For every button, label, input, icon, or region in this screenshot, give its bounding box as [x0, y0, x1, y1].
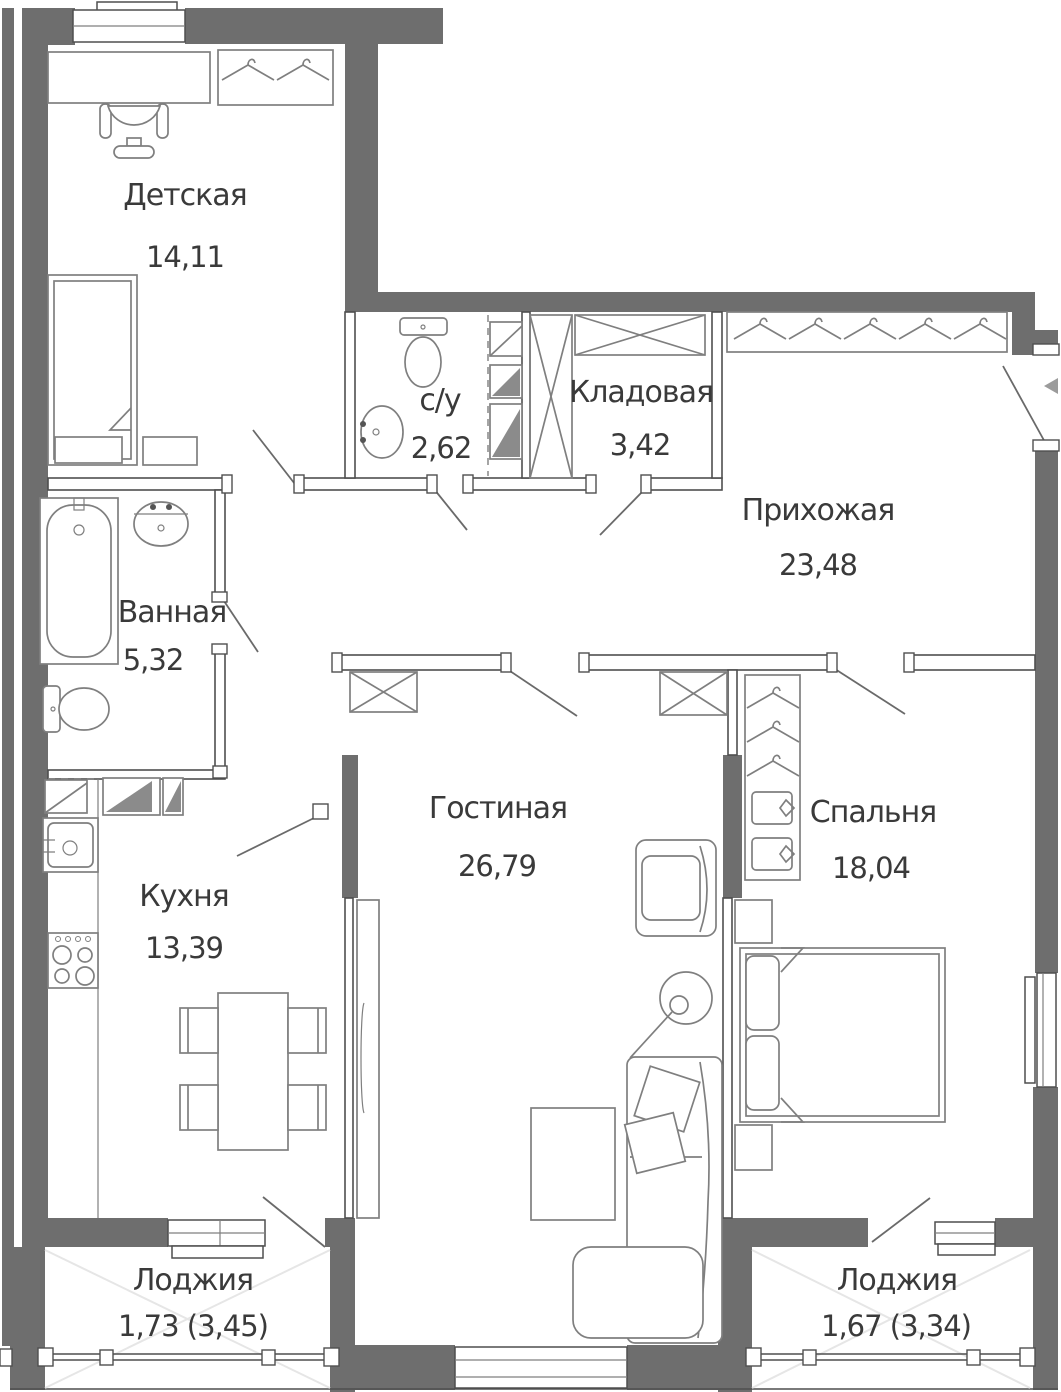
chair — [180, 1085, 218, 1130]
toilet-vannaya — [43, 686, 109, 732]
balcony-door-kitchen — [168, 1220, 265, 1258]
room-label-loggia-right: Лоджия 1,67 (3,34) — [821, 1263, 971, 1343]
kitchen-sink — [43, 818, 98, 872]
vent-gostinaya-left — [350, 672, 417, 712]
room-area: 26,79 — [458, 849, 536, 883]
room-name: Гостиная — [429, 791, 567, 826]
window-gostinaya — [455, 1347, 627, 1388]
toilet-su — [400, 318, 447, 387]
gostinaya-furniture — [531, 840, 722, 1343]
pillow — [746, 1036, 779, 1110]
nightstand — [735, 1125, 772, 1170]
kuhnya-furniture — [43, 778, 379, 1218]
room-area: 1,73 (3,45) — [118, 1309, 268, 1343]
floor-lamp — [630, 972, 712, 1058]
balcony-door-bedroom — [935, 1222, 995, 1255]
door-kladovaya — [600, 489, 645, 535]
desk-chair — [100, 104, 168, 158]
room-name: Спальня — [810, 795, 936, 830]
room-area: 14,11 — [146, 240, 224, 274]
room-area: 5,32 — [123, 643, 184, 677]
entry-arrow-icon — [1044, 378, 1058, 394]
door-su — [434, 489, 467, 530]
stove — [48, 933, 98, 988]
room-label-su: с/у 2,62 — [411, 383, 472, 465]
room-label-vannaya: Ванная 5,32 — [118, 595, 227, 677]
dining-table — [180, 993, 326, 1150]
chair — [288, 1008, 326, 1053]
nightstand — [735, 900, 772, 943]
bedroom-wardrobe — [745, 675, 800, 880]
room-label-loggia-left: Лоджия 1,73 (3,45) — [118, 1263, 268, 1343]
door-loggia-right — [872, 1198, 930, 1242]
room-area: 1,67 (3,34) — [821, 1309, 971, 1343]
bathtub — [40, 498, 118, 664]
room-area: 23,48 — [779, 548, 857, 582]
door-entry — [1003, 366, 1046, 444]
window-detskaya — [73, 2, 185, 42]
laundry-shelves — [490, 322, 522, 459]
vent-kladovaya-wide — [575, 315, 705, 355]
door-kuhnya — [237, 818, 314, 856]
room-name: Лоджия — [133, 1263, 253, 1298]
room-name: с/у — [419, 383, 461, 418]
room-name: Кладовая — [569, 375, 713, 410]
room-area: 13,39 — [145, 931, 223, 965]
floor-plan: Детская 14,11 с/у 2,62 Кладовая 3,42 При… — [0, 0, 1061, 1392]
hall-wardrobe — [727, 312, 1007, 352]
wardrobe — [218, 50, 333, 105]
room-label-prihozhaya: Прихожая 23,48 — [742, 493, 895, 582]
cabinet — [143, 437, 197, 465]
door-gostinaya — [507, 669, 577, 716]
room-label-detskaya: Детская 14,11 — [123, 178, 246, 274]
room-name: Кухня — [139, 879, 228, 914]
room-name: Ванная — [118, 595, 227, 630]
sliding-door-panel — [357, 900, 379, 1218]
nightstand — [55, 437, 122, 463]
vent-gostinaya-right — [660, 672, 727, 715]
bed-double — [740, 948, 945, 1122]
sofa-chaise — [573, 1247, 703, 1338]
room-label-kladovaya: Кладовая 3,42 — [569, 375, 713, 462]
room-area: 3,42 — [610, 428, 671, 462]
door-loggia-left — [263, 1197, 325, 1247]
room-label-gostinaya: Гостиная 26,79 — [429, 791, 567, 883]
sink-su — [360, 406, 403, 458]
under-counter-appliances — [45, 778, 183, 815]
chair — [180, 1008, 218, 1053]
room-area: 18,04 — [832, 851, 910, 885]
floor-plan-page: Детская 14,11 с/у 2,62 Кладовая 3,42 При… — [0, 0, 1061, 1392]
room-label-kuhnya: Кухня 13,39 — [139, 879, 228, 965]
vent-kladovaya-tall — [530, 315, 572, 478]
sink-vannaya — [134, 502, 188, 546]
room-name: Лоджия — [837, 1263, 957, 1298]
exterior-walls — [2, 8, 1058, 1392]
room-name: Прихожая — [742, 493, 895, 528]
door-spalnya — [835, 669, 905, 714]
spalnya-furniture — [735, 675, 945, 1170]
sofa-cushion — [625, 1113, 686, 1174]
coffee-table — [531, 1108, 615, 1220]
room-name: Детская — [123, 178, 246, 213]
window-spalnya — [1025, 973, 1056, 1087]
pillow — [746, 956, 779, 1030]
room-label-spalnya: Спальня 18,04 — [810, 795, 936, 885]
door-detskaya — [253, 430, 298, 488]
door-jambs — [212, 344, 1059, 819]
desk — [48, 52, 210, 103]
armchair — [636, 840, 716, 936]
room-area: 2,62 — [411, 431, 472, 465]
chair — [288, 1085, 326, 1130]
